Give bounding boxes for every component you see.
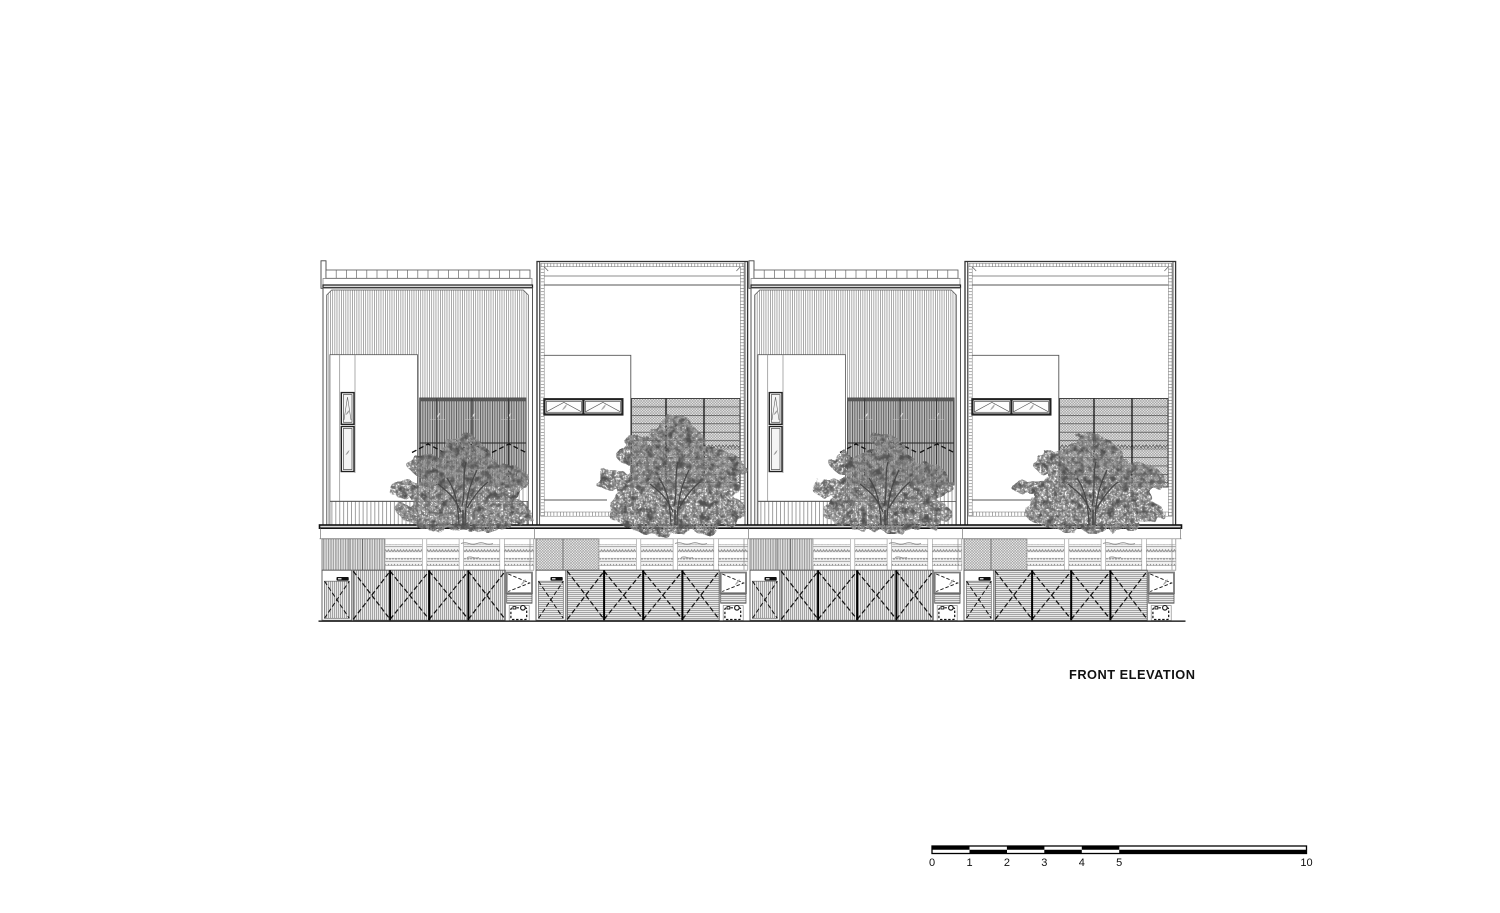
svg-text:3: 3 xyxy=(1041,857,1047,869)
svg-text:1: 1 xyxy=(966,857,972,869)
svg-text:10: 10 xyxy=(1300,857,1312,869)
svg-text:4: 4 xyxy=(1079,857,1085,869)
svg-text:5: 5 xyxy=(1116,857,1122,869)
svg-text:0: 0 xyxy=(929,857,935,869)
svg-text:2: 2 xyxy=(1004,857,1010,869)
svg-text:FRONT ELEVATION: FRONT ELEVATION xyxy=(1069,667,1195,682)
